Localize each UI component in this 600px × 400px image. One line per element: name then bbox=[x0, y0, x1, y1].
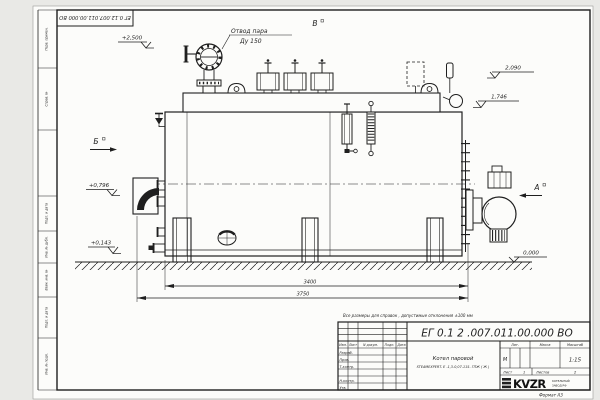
view-letter: А bbox=[533, 183, 539, 192]
steam-outlet-text-2: Ду 150 bbox=[239, 38, 262, 45]
mass-label: Масса bbox=[540, 343, 551, 347]
side-label: Справ. № bbox=[45, 91, 49, 106]
burner-motor bbox=[488, 172, 511, 188]
side-label: Инв. № дубл. bbox=[45, 236, 49, 257]
scale-value: 1:15 bbox=[569, 358, 582, 364]
boiler-shell bbox=[150, 93, 475, 256]
row-prov: Пров. bbox=[340, 358, 350, 362]
row-tkontr: Т.контр. bbox=[340, 365, 355, 369]
scale-label: Масштаб bbox=[567, 343, 583, 347]
elevation-value: 1,746 bbox=[491, 95, 507, 101]
sheet-label: Лист bbox=[502, 371, 513, 375]
product-model: STEAMEXPERT- Е -1,3-0,07-115- ГПЖ ( Ж ) bbox=[417, 365, 490, 369]
elevation-value: 0,000 bbox=[523, 251, 539, 257]
lit-value: М bbox=[503, 357, 508, 363]
row-nkontr: Н.контр. bbox=[340, 379, 355, 383]
side-label: Взам. инв. № bbox=[45, 269, 49, 290]
steam-outlet-text-1: Отвод пара bbox=[231, 28, 268, 35]
logo-subtext-2: ЗАВОД РФ bbox=[552, 384, 567, 388]
product-name: Котел паровой bbox=[433, 356, 474, 362]
elevation-value: +0,143 bbox=[91, 241, 112, 247]
dimension-value: 3400 bbox=[304, 280, 317, 286]
drawing-sheet-screenshot: Перв. примен. Справ. № Подп. и дата Инв.… bbox=[0, 0, 600, 400]
manhole bbox=[218, 231, 236, 245]
reference-note: Все размеры для справок , допустимые отк… bbox=[343, 313, 473, 318]
side-label: Инв. № подл. bbox=[45, 353, 49, 374]
format-label: Формат А3 bbox=[539, 393, 563, 398]
top-stamp-number: ЕГ 0.12.007.011.00.000 ВО bbox=[59, 14, 131, 20]
col-list: Лист bbox=[348, 343, 357, 347]
steam-drum-top bbox=[183, 93, 440, 112]
col-izm: Изм. bbox=[339, 343, 347, 347]
side-label: Перв. примен. bbox=[45, 27, 49, 50]
elevation-value: +0,796 bbox=[89, 183, 110, 189]
dimension-value: 3750 bbox=[297, 292, 310, 298]
logo-text: KVZR bbox=[513, 377, 546, 391]
safety-valves bbox=[257, 59, 333, 93]
sheet-value: 1 bbox=[523, 371, 525, 375]
sheets-label: Листов bbox=[535, 371, 549, 375]
side-label: Подп. и дата bbox=[45, 203, 49, 224]
logo-subtext-1: КОТЕЛЬНЫЙ bbox=[552, 378, 570, 383]
doc-number: ЕГ 0.1 2 .007.011.00.000 ВО bbox=[421, 328, 573, 340]
col-doc: N докум. bbox=[363, 343, 378, 347]
lit-label: Лит. bbox=[510, 343, 519, 347]
view-letter: Б bbox=[93, 137, 98, 146]
col-data: Дата bbox=[396, 343, 405, 347]
elevation-value: +2,500 bbox=[122, 36, 143, 42]
view-letter: В bbox=[312, 19, 317, 28]
side-label: Подп. и дата bbox=[45, 307, 49, 328]
row-razrab: Разраб. bbox=[340, 351, 353, 355]
level-sensor bbox=[447, 63, 454, 78]
col-podp: Подп. bbox=[385, 343, 395, 347]
elevation-value: 2,090 bbox=[505, 66, 521, 72]
ground-line bbox=[75, 262, 532, 270]
row-utv: Утв. bbox=[340, 386, 347, 390]
boiler-assembly-drawing: Перв. примен. Справ. № Подп. и дата Инв.… bbox=[0, 0, 600, 400]
